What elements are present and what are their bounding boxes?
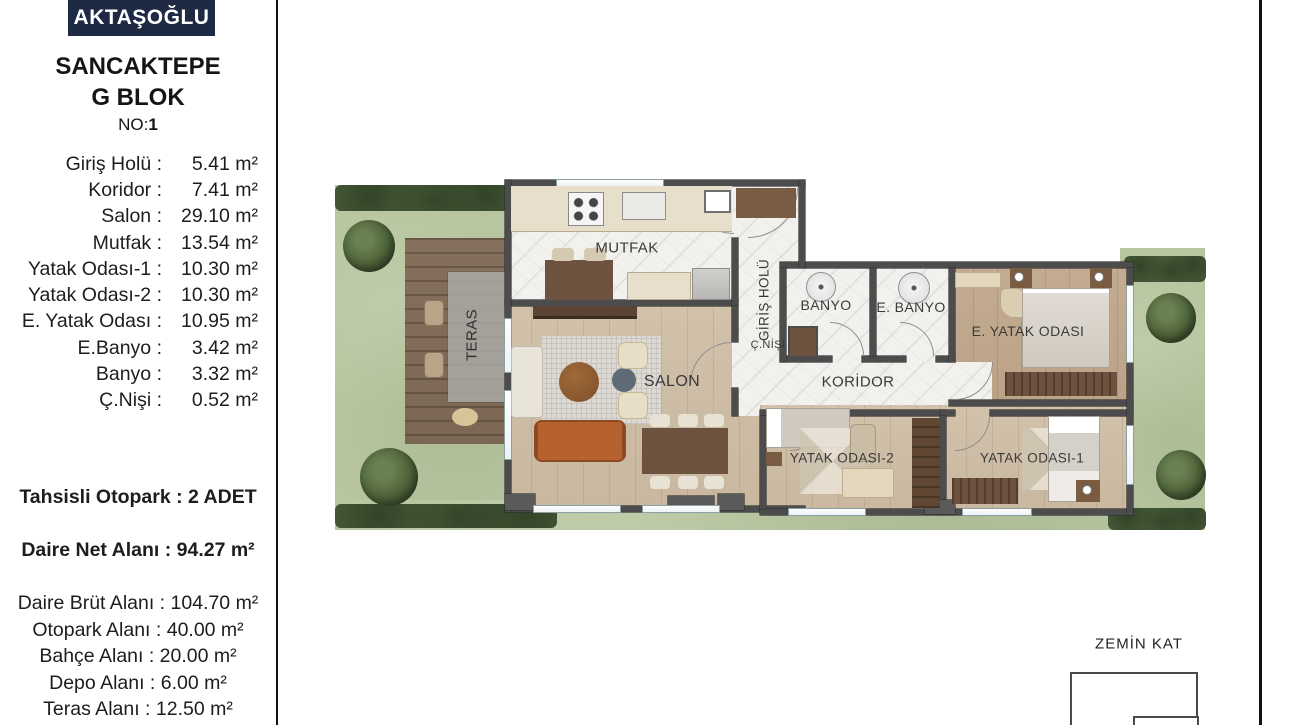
label-mutfak: MUTFAK: [595, 240, 658, 257]
window: [642, 505, 720, 513]
label-cnisi: Ç.NİŞİ: [751, 339, 786, 351]
terrace-chair: [424, 300, 444, 326]
wall: [732, 388, 738, 416]
desk: [842, 468, 894, 498]
stove-icon: [568, 192, 604, 226]
room-area-row: Ç.Nişi :0.52 m²: [0, 388, 258, 414]
floor-plan-page: AKTAŞOĞLU SANCAKTEPE G BLOK NO:1 Giriş H…: [0, 0, 1290, 725]
bench: [955, 272, 1001, 288]
room-area-row: E. Yatak Odası :10.95 m²: [0, 309, 258, 335]
extra-area-row: Otopark Alanı : 40.00 m²: [0, 619, 276, 646]
cnisi-shaft: [788, 326, 818, 358]
sidebar-divider-line: [276, 0, 278, 725]
wall-post: [718, 494, 744, 510]
tree-icon: [343, 220, 395, 272]
extra-area-row: Depo Alanı : 6.00 m²: [0, 672, 276, 699]
wall: [862, 356, 906, 362]
window: [533, 505, 621, 513]
dining-table: [642, 428, 728, 474]
fridge-icon: [692, 268, 730, 300]
wall: [799, 180, 805, 268]
tv-unit: [533, 306, 637, 319]
label-banyo: BANYO: [800, 297, 851, 313]
room-area-row: Yatak Odası-1 :10.30 m²: [0, 256, 258, 282]
extra-area-row: Bahçe Alanı : 20.00 m²: [0, 645, 276, 672]
tree-icon: [360, 448, 418, 506]
terrace-chair: [424, 352, 444, 378]
armchair: [618, 342, 648, 369]
window: [1126, 285, 1134, 363]
block-title: G BLOK: [0, 84, 276, 112]
room-area-row: Mutfak :13.54 m²: [0, 230, 258, 256]
room-area-row: E.Banyo :3.42 m²: [0, 335, 258, 361]
lamp-icon: [1014, 272, 1024, 282]
wall: [732, 238, 738, 306]
window: [1126, 425, 1134, 485]
terrace-decor: [452, 408, 478, 426]
dining-chair: [678, 414, 698, 427]
wardrobe: [912, 418, 940, 508]
wall: [870, 268, 876, 356]
parking-allocation: Tahsisli Otopark : 2 ADET: [0, 486, 276, 509]
net-area: Daire Net Alanı : 94.27 m²: [0, 539, 276, 562]
label-yatak2: YATAK ODASI-2: [790, 451, 894, 466]
room-area-row: Yatak Odası-2 :10.30 m²: [0, 282, 258, 308]
entry-niche: [704, 190, 731, 213]
coffee-table: [559, 362, 599, 402]
label-yatak1: YATAK ODASI-1: [980, 451, 1084, 466]
dining-chair: [704, 414, 724, 427]
info-sidebar: AKTAŞOĞLU SANCAKTEPE G BLOK NO:1 Giriş H…: [0, 0, 276, 725]
kitchen-lower-counter: [627, 272, 691, 300]
floor-level-label: ZEMİN KAT: [1095, 636, 1183, 653]
label-koridor: KORİDOR: [822, 374, 895, 391]
extra-area-row: Daire Brüt Alanı : 104.70 m²: [0, 592, 276, 619]
dining-chair: [678, 476, 698, 489]
extra-area-list: Daire Brüt Alanı : 104.70 m² Otopark Ala…: [0, 592, 276, 725]
armchair: [618, 392, 648, 419]
tree-icon: [1146, 293, 1196, 343]
room-area-row: Koridor :7.41 m²: [0, 177, 258, 203]
kitchen-table: [545, 260, 613, 300]
dining-chair: [704, 476, 724, 489]
room-area-row: Salon :29.10 m²: [0, 204, 258, 230]
room-area-row: Giriş Holü :5.41 m²: [0, 151, 258, 177]
window: [788, 508, 866, 516]
sofa-orange: [534, 420, 626, 462]
side-table: [612, 368, 636, 392]
extra-area-row: Teras Alanı : 12.50 m²: [0, 698, 276, 725]
window: [962, 508, 1032, 516]
nightstand: [766, 452, 782, 466]
wall: [949, 400, 1133, 406]
tree-icon: [1156, 450, 1206, 500]
wall-post: [505, 494, 535, 510]
room-area-list: Giriş Holü :5.41 m² Koridor :7.41 m² Sal…: [0, 151, 258, 414]
label-giris-holu: GİRİŞ HOLÜ: [757, 259, 772, 341]
project-title: SANCAKTEPE: [0, 52, 276, 82]
dining-chair: [650, 414, 670, 427]
unit-number: NO:1: [0, 115, 276, 135]
key-plan-inner-outline: [1133, 716, 1199, 725]
hedge-top-right: [1124, 256, 1206, 282]
label-ebanyo: E. BANYO: [876, 299, 945, 315]
dresser: [1005, 372, 1117, 396]
label-salon: SALON: [644, 373, 700, 391]
sofa-white: [511, 346, 543, 418]
kitchen-chair: [552, 248, 574, 261]
room-area-row: Banyo :3.32 m²: [0, 361, 258, 387]
lamp-icon: [1082, 485, 1092, 495]
sink-icon: [622, 192, 666, 220]
label-teras: TERAS: [464, 309, 481, 361]
dining-chair: [650, 476, 670, 489]
dresser: [952, 478, 1018, 504]
entry-cabinet: [736, 188, 796, 218]
wall: [780, 262, 1133, 268]
label-eyatak: E. YATAK ODASI: [972, 323, 1085, 339]
right-border-line: [1259, 0, 1262, 725]
wall: [732, 306, 738, 342]
brand-logo: AKTAŞOĞLU: [68, 0, 215, 36]
lamp-icon: [1094, 272, 1104, 282]
brand-logo-text: AKTAŞOĞLU: [74, 6, 210, 30]
hedge-top-left: [335, 185, 511, 211]
